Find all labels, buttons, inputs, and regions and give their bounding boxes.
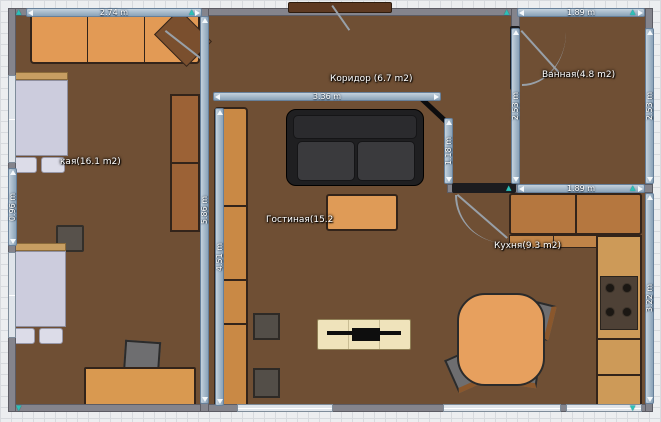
sofa-cushion xyxy=(357,141,415,181)
sofa[interactable] xyxy=(286,109,424,186)
dimension-cabinet-length: 4.51 m xyxy=(215,108,224,406)
stove-burner xyxy=(622,307,632,317)
wall-endpoint-marker-icon[interactable]: ▲ xyxy=(506,185,511,192)
desk[interactable] xyxy=(84,367,196,406)
wall-endpoint-marker-icon[interactable]: ▲ xyxy=(504,9,509,16)
dimension-bathroom-left-height: 2.53 m xyxy=(511,28,520,184)
dimension-kitchen-counter-width: 1.89 m xyxy=(517,184,645,193)
kitchen-counter[interactable] xyxy=(509,193,642,235)
bed-headboard xyxy=(10,72,68,80)
wall-endpoint-marker-icon[interactable]: ▲ xyxy=(16,9,21,16)
dimension-left-wall-height: 5.86 m xyxy=(200,16,209,404)
window-left-1[interactable] xyxy=(8,75,16,163)
stove[interactable] xyxy=(600,276,638,330)
stove-burner xyxy=(605,283,615,293)
window-bottom-2[interactable] xyxy=(443,404,561,412)
room-label-bedroom: кая(16.1 m2) xyxy=(60,157,121,167)
room-label-kitchen: Кухня(9.3 m2) xyxy=(494,241,561,251)
dimension-corridor-width: 3.36 m xyxy=(213,92,441,101)
tv-base xyxy=(352,328,380,341)
sofa-backrest xyxy=(293,115,417,139)
window-left-2[interactable] xyxy=(8,252,16,338)
dining-table[interactable] xyxy=(457,293,545,386)
dimension-bathroom-right-height: 2.53 m xyxy=(645,28,654,184)
wall-endpoint-marker-icon[interactable]: ▼ xyxy=(16,405,21,412)
window-bottom-1[interactable] xyxy=(237,404,333,412)
dimension-bathroom-top-width: 1.89 m xyxy=(517,8,645,17)
sofa-cushion xyxy=(297,141,355,181)
coffee-table[interactable] xyxy=(326,194,398,231)
pillow xyxy=(39,328,63,344)
stool[interactable] xyxy=(253,368,280,398)
wall-endpoint-marker-icon[interactable]: ▼ xyxy=(630,405,635,412)
tv-stand[interactable] xyxy=(317,319,411,350)
stove-burner xyxy=(605,307,615,317)
bedroom-cabinet[interactable] xyxy=(170,94,200,232)
stool[interactable] xyxy=(253,313,280,340)
dimension-kitchen-right-height: 3.22 m xyxy=(645,193,654,404)
room-label-living: Гостиная(15.2 xyxy=(266,215,333,225)
bed[interactable] xyxy=(10,80,68,156)
dimension-bed-gap-height: 0.96 m xyxy=(8,168,17,246)
wall-endpoint-marker-icon[interactable]: ▲ xyxy=(630,185,635,192)
room-label-bathroom: Ванная(4.8 m2) xyxy=(542,70,615,80)
room-label-corridor: Коридор (6.7 m2) xyxy=(330,74,412,84)
dimension-bedroom-top-width: 2.74 m xyxy=(26,8,202,17)
stove-burner xyxy=(622,283,632,293)
dimension-hall-opening-height: 1.18 m xyxy=(444,118,453,184)
floor-plan-canvas: 2.74 m 1.89 m 3.36 m 1.89 m 2.53 m 2.53 … xyxy=(0,0,661,422)
wall-endpoint-marker-icon[interactable]: ▲ xyxy=(189,9,194,16)
bed[interactable] xyxy=(8,251,66,327)
entry-door[interactable] xyxy=(288,2,392,13)
wall-endpoint-marker-icon[interactable]: ▲ xyxy=(630,9,635,16)
